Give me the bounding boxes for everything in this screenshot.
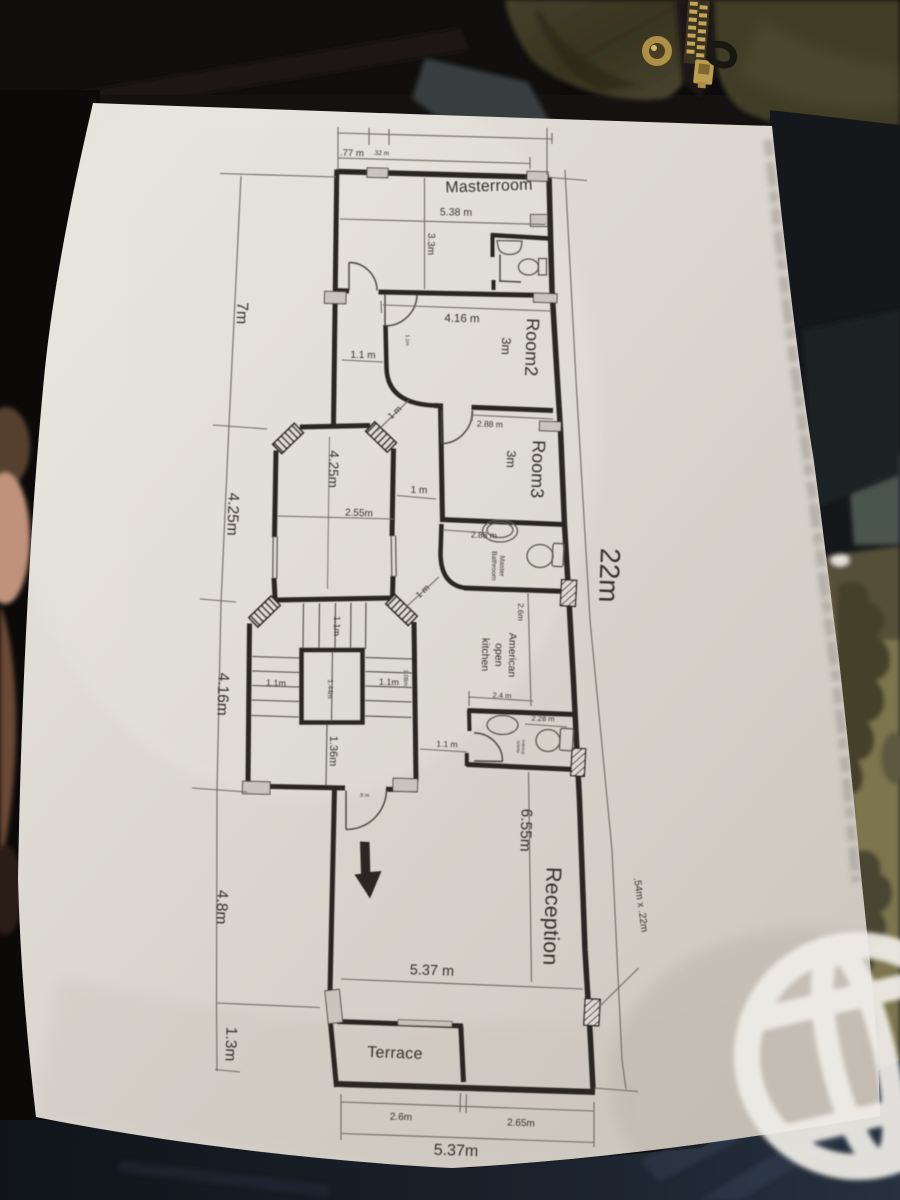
svg-text:7m: 7m bbox=[233, 302, 251, 325]
svg-text:4.16m: 4.16m bbox=[213, 672, 231, 716]
svg-text:Room3: Room3 bbox=[527, 440, 549, 499]
svg-text:2.6m: 2.6m bbox=[516, 603, 525, 621]
svg-text:2.4 m: 2.4 m bbox=[492, 691, 511, 701]
svg-text:3.3m: 3.3m bbox=[425, 233, 436, 255]
svg-text:2.88 m: 2.88 m bbox=[471, 530, 497, 541]
svg-text:5.37m: 5.37m bbox=[433, 1142, 478, 1161]
svg-text:1.1m: 1.1m bbox=[332, 616, 342, 636]
svg-text:.9 m: .9 m bbox=[358, 793, 369, 799]
svg-text:3m: 3m bbox=[499, 337, 514, 355]
svg-text:1.1 m: 1.1 m bbox=[436, 739, 458, 750]
svg-text:4.25m: 4.25m bbox=[223, 492, 241, 536]
svg-text:1.1 m: 1.1 m bbox=[350, 350, 375, 361]
svg-text:1.1m: 1.1m bbox=[404, 334, 410, 345]
svg-text:4.8m: 4.8m bbox=[212, 890, 230, 925]
svg-text:1 m: 1 m bbox=[410, 485, 427, 497]
svg-text:Room2: Room2 bbox=[521, 318, 543, 377]
svg-text:5.38 m: 5.38 m bbox=[440, 206, 473, 219]
svg-text:makeuptoilette: makeuptoilette bbox=[516, 739, 526, 755]
svg-text:1.36m: 1.36m bbox=[327, 736, 340, 767]
svg-text:1.1m: 1.1m bbox=[379, 677, 399, 688]
svg-text:22m: 22m bbox=[593, 548, 626, 604]
svg-text:2.65m: 2.65m bbox=[507, 1118, 535, 1130]
svg-text:2.88 m: 2.88 m bbox=[477, 419, 503, 430]
svg-text:4.16 m: 4.16 m bbox=[444, 313, 479, 326]
svg-text:1.1m: 1.1m bbox=[266, 678, 286, 689]
svg-text:2.6m: 2.6m bbox=[390, 1112, 413, 1124]
svg-text:2.28 m: 2.28 m bbox=[531, 714, 554, 724]
svg-text:1.44m: 1.44m bbox=[326, 679, 333, 699]
svg-text:.32 m: .32 m bbox=[373, 150, 389, 157]
svg-text:.77 m: .77 m bbox=[340, 148, 364, 160]
svg-text:Masterroom: Masterroom bbox=[445, 176, 533, 196]
svg-text:5.37 m: 5.37 m bbox=[410, 962, 455, 980]
svg-text:1.08m: 1.08m bbox=[402, 670, 408, 687]
svg-text:1.3m: 1.3m bbox=[221, 1027, 239, 1062]
svg-text:3m: 3m bbox=[504, 450, 519, 468]
svg-text:4.25m: 4.25m bbox=[325, 450, 341, 488]
svg-text:Terrace: Terrace bbox=[367, 1044, 423, 1063]
svg-text:6.55m: 6.55m bbox=[516, 808, 534, 852]
svg-text:Reception: Reception bbox=[538, 867, 565, 966]
